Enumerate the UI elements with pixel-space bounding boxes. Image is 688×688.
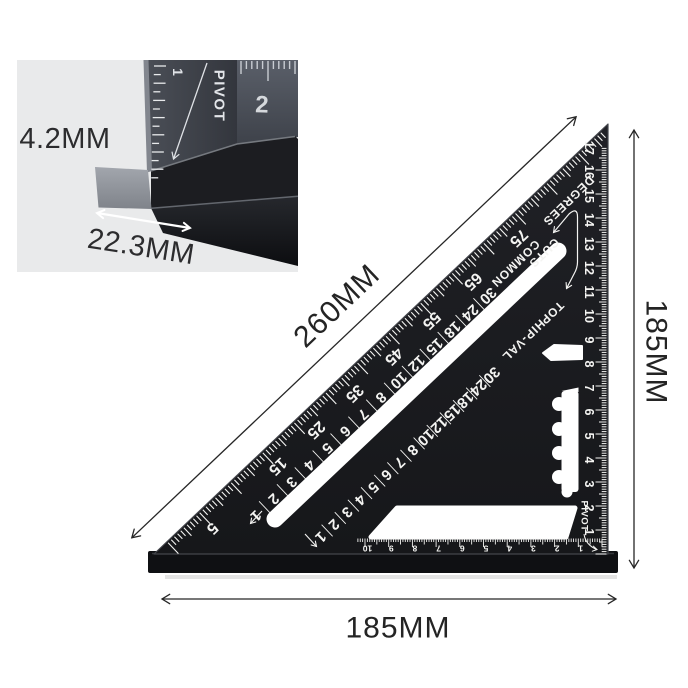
svg-text:5: 5: [582, 433, 596, 440]
bottom-dimension-label: 185MM: [345, 612, 450, 645]
inset-face-number: 2: [255, 91, 269, 118]
svg-text:4: 4: [582, 457, 596, 464]
svg-text:8: 8: [582, 361, 596, 368]
pivot-label: PIVOT: [579, 500, 590, 531]
svg-text:8: 8: [412, 544, 417, 554]
svg-text:10: 10: [363, 544, 373, 554]
svg-text:3: 3: [531, 544, 536, 554]
right-dimension-label: 185MM: [640, 299, 673, 404]
svg-text:7: 7: [582, 385, 596, 392]
svg-text:5: 5: [483, 544, 488, 554]
svg-text:12: 12: [582, 261, 596, 275]
svg-text:9: 9: [389, 544, 394, 554]
inset-thickness-label: 4.2MM: [19, 123, 110, 155]
inset-fence-end-face: [95, 167, 152, 209]
inset-pivot-text: PIVOT: [211, 70, 228, 123]
product-diagram: 1 PIVOT 2 4.2MM 22.3MM: [0, 0, 688, 688]
svg-text:6: 6: [582, 409, 596, 416]
hypotenuse-dimension-label: 260MM: [288, 258, 387, 354]
svg-text:13: 13: [582, 237, 596, 251]
svg-text:3: 3: [582, 481, 596, 488]
svg-text:6: 6: [460, 544, 465, 554]
lip-shadow: [165, 575, 617, 579]
inset-blade-number: 1: [170, 68, 186, 76]
svg-text:1: 1: [578, 544, 583, 554]
svg-text:7: 7: [436, 544, 441, 554]
scene-svg: 1 PIVOT 2 4.2MM 22.3MM: [0, 0, 688, 688]
svg-text:4: 4: [507, 544, 512, 554]
svg-text:17: 17: [582, 141, 596, 155]
svg-text:10: 10: [582, 309, 596, 323]
svg-text:9: 9: [582, 337, 596, 344]
svg-text:2: 2: [554, 544, 559, 554]
svg-text:11: 11: [582, 285, 596, 298]
bottom-slot: [371, 508, 575, 537]
inset-photo: 1 PIVOT 2 4.2MM 22.3MM: [17, 60, 298, 272]
svg-text:14: 14: [582, 213, 596, 227]
